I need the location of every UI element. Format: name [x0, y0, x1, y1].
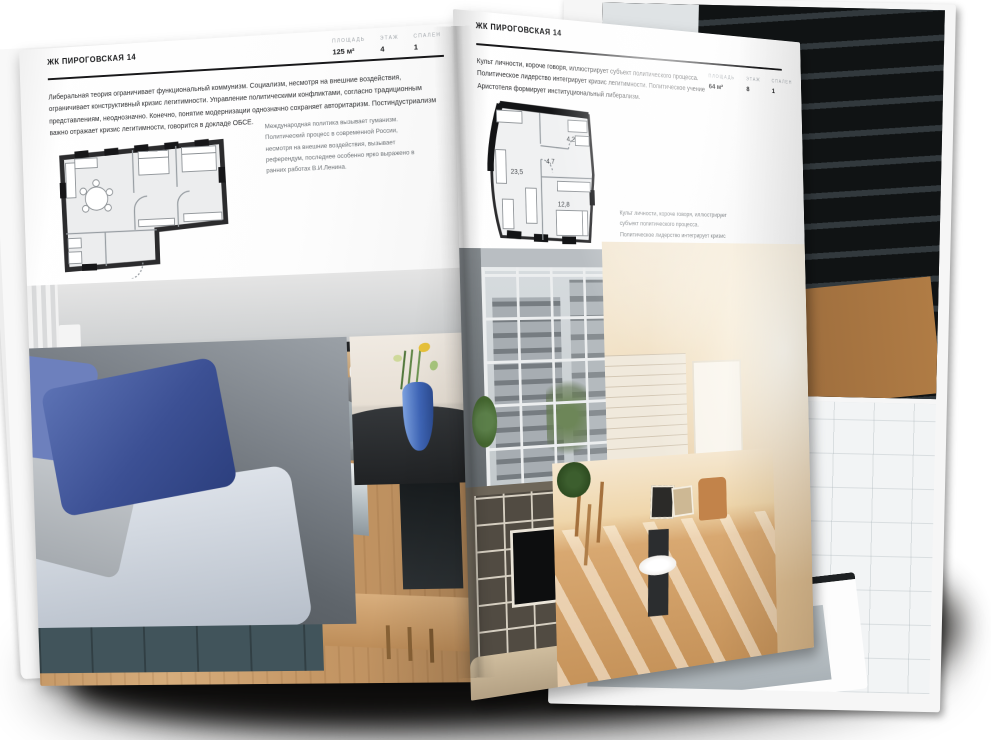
- left-caption: Международная политика вызывает гуманизм…: [265, 113, 421, 177]
- stat-area-label: ПЛОЩАДЬ: [332, 37, 365, 45]
- stat-bedrooms: СПАЛЕН 1: [772, 79, 793, 97]
- stat-floor-value: 8: [746, 85, 761, 94]
- stat-floor-value: 4: [380, 44, 399, 54]
- room-area-label: 12,8: [558, 201, 570, 208]
- plant: [557, 461, 591, 499]
- leaning-frame: [672, 485, 695, 517]
- stat-bedrooms-value: 1: [772, 87, 793, 97]
- sunny-room-photo: [552, 448, 778, 687]
- stat-area-label: ПЛОЩАДЬ: [708, 74, 734, 82]
- flower-bud: [393, 354, 402, 361]
- stat-floor-label: ЭТАЖ: [746, 77, 761, 84]
- room-area-label: 23,5: [511, 169, 524, 177]
- stat-floor: ЭТАЖ 8: [746, 77, 761, 94]
- flower-bud: [428, 359, 439, 371]
- right-page: ЖК ПИРОГОВСКАЯ 14 Культ личности, короче…: [453, 9, 814, 701]
- stat-area: ПЛОЩАДЬ 64 м²: [708, 74, 735, 92]
- stat-bedrooms-label: СПАЛЕН: [772, 79, 793, 86]
- yellow-lily: [417, 341, 431, 354]
- stat-area: ПЛОЩАДЬ 125 м²: [332, 37, 366, 57]
- magazine-mockup-scene: ЖК ПИРОГОВСКАЯ 14 ПЛОЩАДЬ 125 м² ЭТАЖ 4 …: [0, 0, 991, 740]
- left-stats: ПЛОЩАДЬ 125 м² ЭТАЖ 4 СПАЛЕН 1: [332, 32, 442, 56]
- sofa-photo: [29, 337, 356, 628]
- room-area-label: 4,7: [546, 158, 555, 165]
- floor-plan-right: 23,5 4,7 4,2 12,8: [468, 90, 614, 249]
- left-page-title: ЖК ПИРОГОВСКАЯ 14: [47, 53, 136, 67]
- stat-area-value: 125 м²: [332, 46, 365, 57]
- stat-floor: ЭТАЖ 4: [380, 35, 399, 54]
- stat-floor-label: ЭТАЖ: [380, 35, 399, 42]
- room-area-label: 4,2: [567, 136, 576, 143]
- floor-plan-left: [46, 127, 241, 282]
- leather-armchair: [698, 476, 727, 521]
- left-page: ЖК ПИРОГОВСКАЯ 14 ПЛОЩАДЬ 125 м² ЭТАЖ 4 …: [19, 23, 489, 686]
- right-page-title: ЖК ПИРОГОВСКАЯ 14: [476, 21, 562, 38]
